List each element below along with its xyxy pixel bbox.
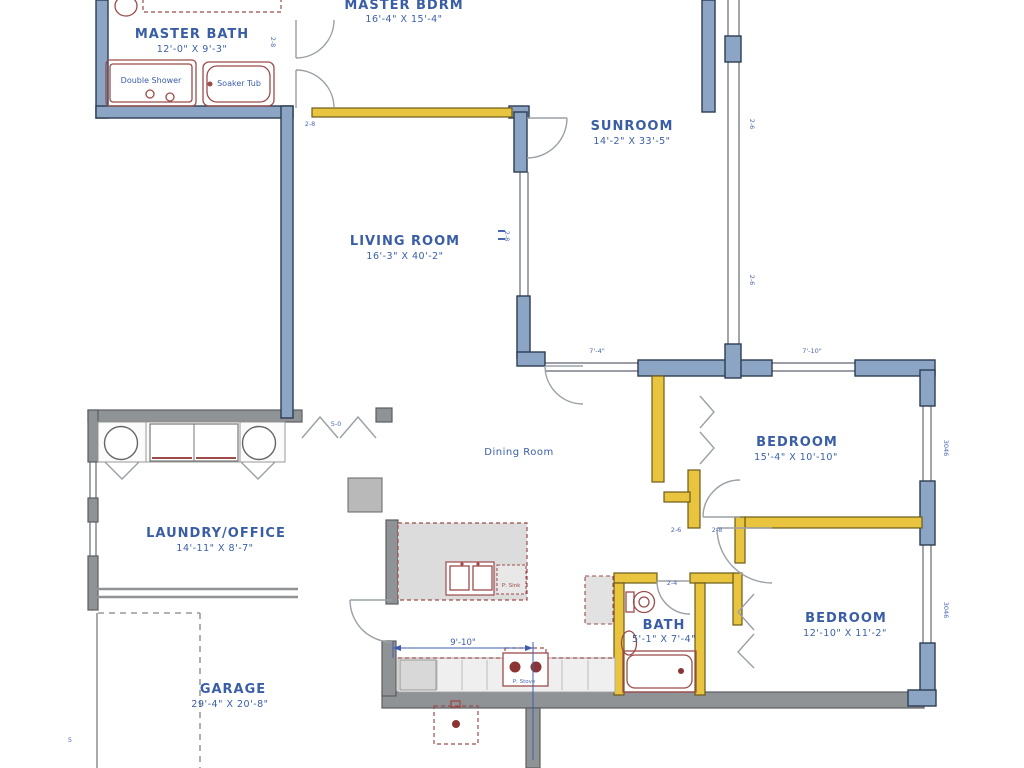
kitchen-counter [398,648,615,692]
label-soaker-tub: Soaker Tub [217,79,261,88]
room-label-bedroom2: BEDROOM [805,611,887,626]
room-label-garage: GARAGE [200,682,266,697]
laundry-appliances [98,422,285,462]
bathtub [623,651,696,692]
room-label-bedroom1: BEDROOM [756,435,838,450]
laundry-tub-right [243,427,276,460]
laundry-tub-left [105,427,138,460]
dim-closet-door: 5-0 [331,420,342,428]
room-label-dining: Dining Room [484,447,553,458]
dim-top-window-right: 7'-10" [802,347,822,355]
note-stove: P: Stove [513,679,536,685]
dim-mbr-door: 2-8 [305,120,316,128]
room-label-master-bdrm: MASTER BDRM [344,0,463,13]
room-dims-laundry: 14'-11" X 8'-7" [176,543,253,554]
fridge [585,576,613,624]
room-label-living: LIVING ROOM [350,234,460,249]
dim-b1-door: 2-6 [671,526,682,534]
toilet-bowl [634,592,655,613]
room-dims-bedroom1: 15'-4" X 10'-10" [754,452,838,463]
room-label-laundry: LAUNDRY/OFFICE [146,526,286,541]
dim-right-window-1: 3046 [942,440,950,457]
interior-walls [312,108,922,695]
dim-right-window-2: 3046 [942,602,950,619]
dim-mbath-window: 2-8 [269,37,277,48]
dim-bath-door: 2-4 [667,579,678,587]
room-label-bath: BATH [643,618,686,633]
floor-plan-page: MASTER BATH 12'-0" X 9'-3" MASTER BDRM 1… [0,0,1024,768]
dim-living-window: 2-8 [503,231,511,242]
vanity [143,0,281,12]
dim-kitchen-width: 9'-10" [450,638,476,648]
toilet-master [115,0,137,16]
label-double-shower: Double Shower [121,76,182,85]
room-label-sunroom: SUNROOM [591,119,674,134]
bifold-laundry [104,461,276,479]
room-dims-sunroom: 14'-2" X 33'-5" [593,136,670,147]
room-dims-master-bath: 12'-0" X 9'-3" [157,44,228,55]
dim-sunroom-window-2: 2-6 [748,275,756,286]
room-dims-master-bdrm: 16'-4" X 15'-4" [365,14,442,25]
dim-b1-door2: 2-8 [712,526,723,534]
toilet-tank [626,592,634,612]
dim-top-window-left: 7'-4" [589,347,604,355]
note-sink: P: Sink [502,583,521,589]
garage-outline [97,613,200,768]
room-dims-bath: 5'-1" X 7'-4" [632,634,696,645]
dim-garage-side: 5 [68,736,72,744]
room-dims-living: 16'-3" X 40'-2" [366,251,443,262]
dishwasher [497,565,526,594]
room-dims-garage: 29'-4" X 20'-8" [191,699,268,710]
floor-plan-canvas: MASTER BATH 12'-0" X 9'-3" MASTER BDRM 1… [0,0,1024,768]
dim-sunroom-window-1: 2-6 [748,119,756,130]
bifold-bedroom1-closet [700,396,714,464]
room-label-master-bath: MASTER BATH [135,27,249,42]
room-dims-bedroom2: 12'-10" X 11'-2" [803,628,887,639]
